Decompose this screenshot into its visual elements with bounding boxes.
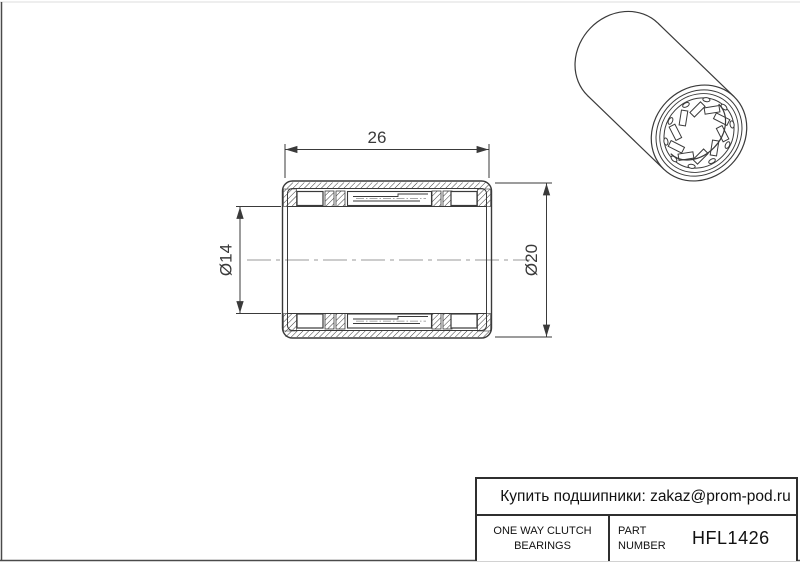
dim-bore-label: Ø14 (217, 244, 236, 276)
dim-width-label: 26 (368, 128, 387, 147)
bearing-3d-view (555, 0, 766, 201)
cage-bottom (348, 314, 432, 328)
product-type-cell: ONE WAY CLUTCH BEARINGS (477, 516, 610, 561)
shell-hatch-top (285, 183, 489, 189)
dimension-width-26: 26 (285, 128, 489, 178)
dimension-outer-20: Ø20 (495, 183, 552, 337)
part-label-line2: NUMBER (618, 539, 666, 553)
part-number-value: HFL1426 (666, 528, 796, 549)
dim-outer-label: Ø20 (522, 244, 541, 276)
bearing-section-view (247, 181, 530, 338)
part-info-row: ONE WAY CLUTCH BEARINGS PART NUMBER HFL1… (477, 516, 796, 561)
shell-hatch-bottom (285, 331, 489, 337)
contact-row: Купить подшипники: zakaz@prom-pod.ru (477, 479, 796, 516)
product-type-line1: ONE WAY CLUTCH (493, 524, 591, 538)
part-label-line1: PART (618, 524, 666, 538)
part-number-cell: PART NUMBER HFL1426 (610, 516, 796, 561)
product-type-line2: BEARINGS (514, 539, 571, 553)
title-block: Купить подшипники: zakaz@prom-pod.ru ONE… (475, 477, 798, 561)
part-number-label: PART NUMBER (610, 524, 666, 553)
contact-text: Купить подшипники: zakaz@prom-pod.ru (500, 488, 790, 506)
cage-top (348, 192, 432, 206)
